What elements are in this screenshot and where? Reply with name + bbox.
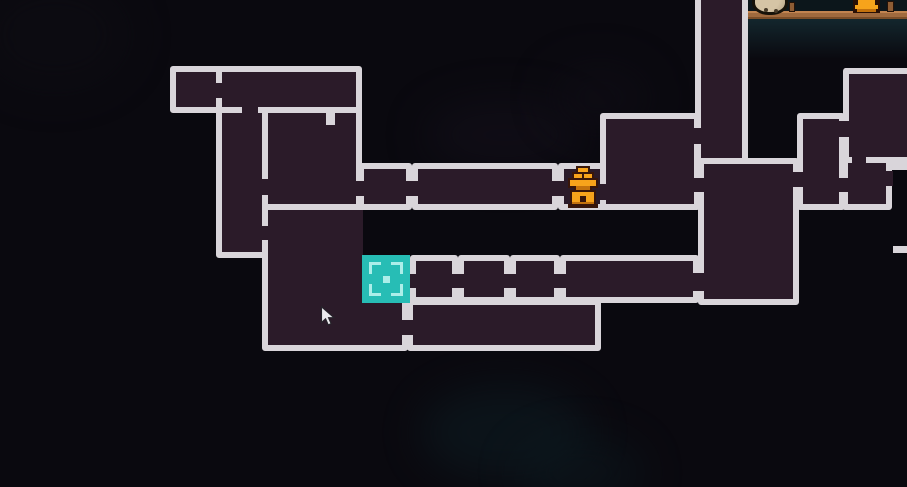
map-room-mid-right	[600, 113, 700, 210]
map-rooms-layer	[0, 0, 907, 487]
door-opening	[211, 83, 223, 98]
door-opening	[550, 181, 564, 196]
map-border-segment	[888, 163, 907, 170]
door-opening	[690, 273, 706, 291]
door-opening	[399, 320, 415, 335]
reticle-center-dot	[383, 276, 390, 283]
door-opening	[791, 172, 805, 187]
door-opening	[692, 178, 704, 192]
current-room-marker	[362, 255, 410, 303]
door-opening	[836, 178, 850, 192]
door-opening	[404, 181, 418, 196]
map-room-top-wide	[216, 66, 362, 113]
map-room-upper-mid	[262, 107, 362, 210]
reticle-corner-icon	[391, 284, 403, 296]
door-opening	[502, 274, 518, 288]
mouse-cursor-icon	[320, 306, 336, 328]
reticle-corner-icon	[369, 262, 381, 274]
map-room-bottom-wide	[407, 299, 601, 351]
door-opening	[354, 181, 366, 196]
door-opening	[259, 179, 270, 195]
ledge-marker	[326, 111, 335, 125]
door-opening	[692, 128, 703, 144]
door-opening	[450, 274, 466, 288]
door-opening	[852, 155, 866, 165]
map-unexplored-gap	[363, 210, 408, 255]
map-room-low-row-4	[560, 255, 699, 303]
reticle-corner-icon	[369, 284, 381, 296]
door-opening	[259, 226, 270, 240]
door-opening	[242, 102, 258, 114]
map-room-big-right	[698, 158, 799, 305]
door-opening	[885, 171, 893, 186]
map-border-segment	[893, 246, 907, 253]
save-point-bell-icon	[564, 166, 602, 208]
map-room-far-right-top	[843, 68, 907, 163]
reticle-corner-icon	[391, 262, 403, 274]
map-screen[interactable]	[0, 0, 907, 487]
door-opening	[552, 274, 568, 288]
door-opening	[837, 121, 851, 137]
map-room-mid-row-2	[412, 163, 558, 210]
